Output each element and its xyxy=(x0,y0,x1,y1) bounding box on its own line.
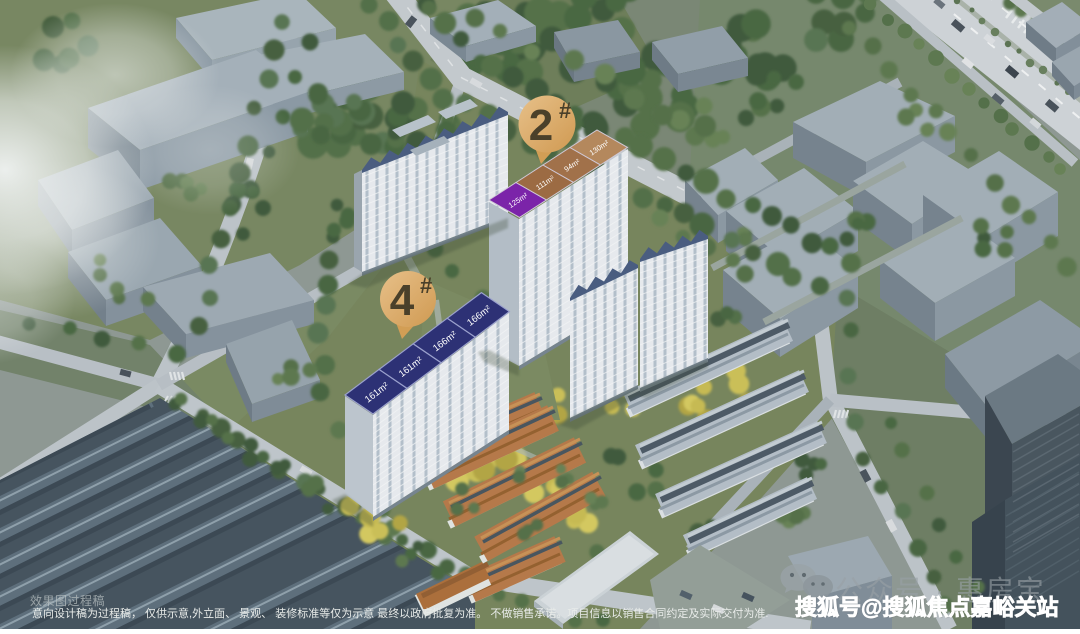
svg-text:2: 2 xyxy=(529,101,553,150)
svg-text:#: # xyxy=(420,273,432,298)
svg-text:#: # xyxy=(559,98,571,123)
svg-text:4: 4 xyxy=(390,276,415,325)
